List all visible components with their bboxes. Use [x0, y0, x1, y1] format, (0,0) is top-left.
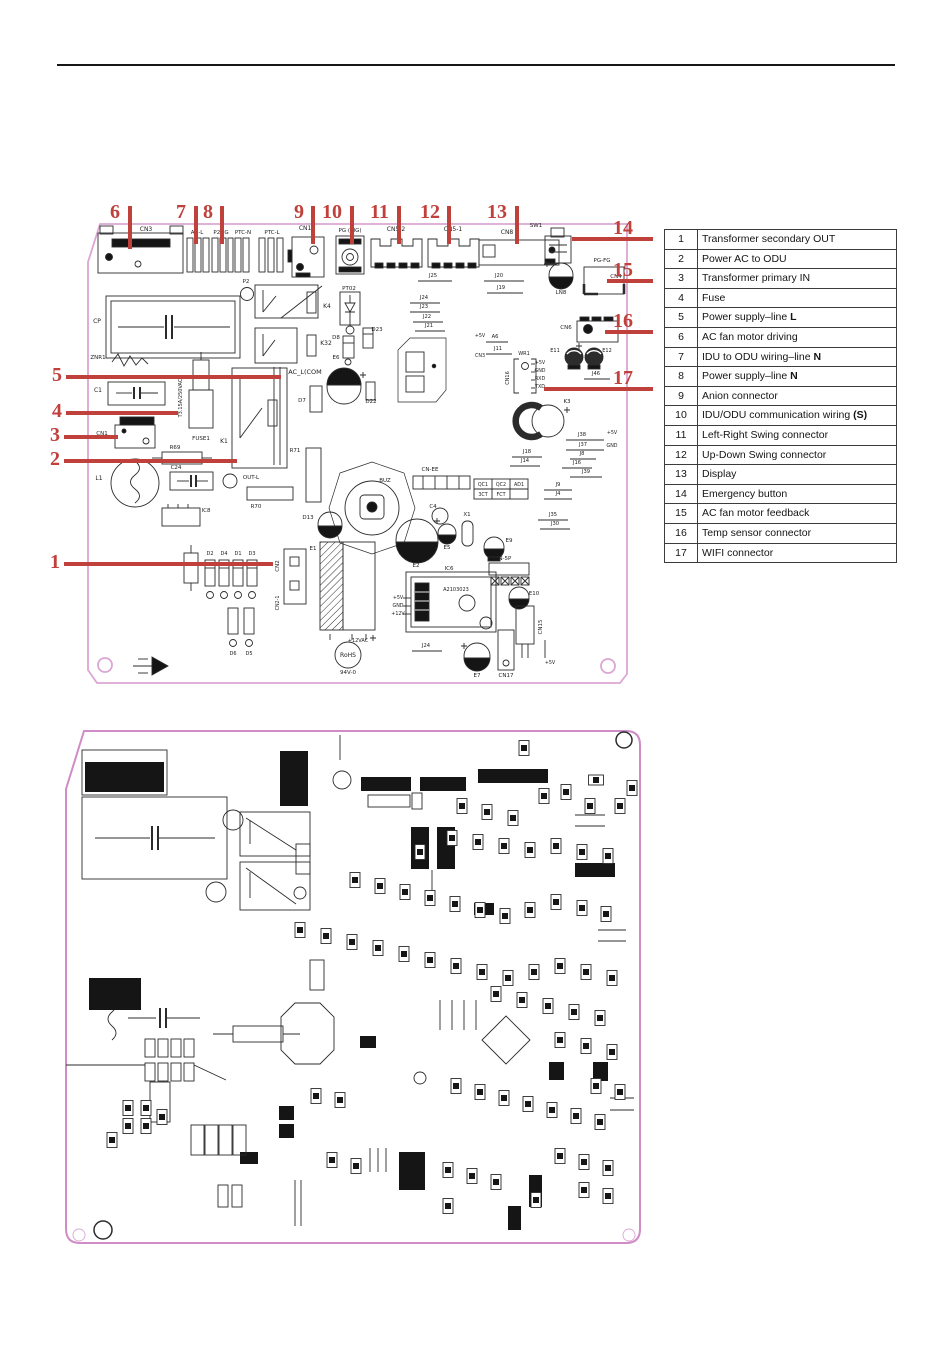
pcb-footprint — [629, 785, 635, 791]
pcb-footprint — [323, 933, 329, 939]
pcb-footprint — [205, 1125, 218, 1155]
pcb-footprint — [375, 945, 381, 951]
legend-label: Power AC to ODU — [698, 249, 897, 269]
pcb-footprint — [557, 1153, 563, 1159]
legend-num: 14 — [665, 484, 698, 504]
silkscreen-label: CN6 — [560, 325, 572, 331]
pcb-footprint — [583, 969, 589, 975]
silkscreen-label: CN11 — [299, 225, 315, 232]
silkscreen-label: BUZ — [379, 478, 391, 484]
pcb-footprint — [143, 1123, 149, 1129]
pcb-footprint — [593, 1083, 599, 1089]
silkscreen-label: PG (SIG) — [339, 228, 362, 234]
legend-row: 7IDU to ODU wiring–line N — [665, 347, 897, 367]
pcb-footprint — [508, 1206, 521, 1230]
pcb-footprint — [232, 1185, 242, 1207]
silkscreen-label: +5V — [475, 333, 486, 339]
silkscreen-label: CN1 — [96, 431, 107, 437]
silkscreen-label: J11 — [493, 346, 502, 352]
silkscreen-label: J18 — [522, 449, 531, 455]
pcb-footprint — [579, 849, 585, 855]
silkscreen-label: WR1 — [518, 351, 530, 357]
pcb-footprint — [414, 1072, 426, 1084]
legend-label: Up-Down Swing connector — [698, 445, 897, 465]
pcb-footprint — [218, 1185, 228, 1207]
legend-num: 11 — [665, 425, 698, 445]
silkscreen-label: IC6 — [445, 566, 454, 572]
legend-row: 6AC fan motor driving — [665, 327, 897, 347]
silkscreen-label: R71 — [290, 448, 301, 454]
pcb-footprint — [240, 862, 310, 910]
silkscreen-label: D4 — [220, 551, 227, 557]
silkscreen-label: ZNR1 — [90, 355, 105, 361]
pcb-footprint — [469, 1173, 475, 1179]
silkscreen-label: K32 — [320, 340, 332, 347]
legend-table-body: 1Transformer secondary OUT2Power AC to O… — [665, 230, 897, 563]
pcb-footprint — [502, 913, 508, 919]
silkscreen-label: SW1 — [530, 223, 542, 229]
silkscreen-label: CP — [93, 318, 101, 325]
pcb-footprint — [549, 1107, 555, 1113]
legend-num: 13 — [665, 465, 698, 485]
pcb-footprint — [605, 1165, 611, 1171]
silkscreen-label: +12VAC — [348, 638, 369, 644]
silkscreen-label: J37 — [578, 442, 587, 448]
pcb-footprint — [368, 795, 410, 807]
silkscreen-label: D6 — [229, 651, 236, 657]
legend-num: 6 — [665, 327, 698, 347]
pcb-footprint — [401, 951, 407, 957]
silkscreen-label: C1 — [94, 387, 102, 394]
legend-label: AC fan motor driving — [698, 327, 897, 347]
pcb-footprint — [541, 793, 547, 799]
pcb-footprint — [233, 1125, 246, 1155]
pcb-footprint — [279, 1106, 294, 1120]
pcb-footprint — [109, 1137, 115, 1143]
pcb-footprint — [557, 1037, 563, 1043]
pcb-footprint — [527, 907, 533, 913]
pcb-footprint — [563, 789, 569, 795]
silkscreen-label: C4 — [429, 504, 437, 510]
pcb-footprint — [531, 969, 537, 975]
silkscreen-label: PTC-L — [264, 230, 280, 236]
pcb-footprint — [329, 1157, 335, 1163]
legend-row: 4Fuse — [665, 288, 897, 308]
pcb-footprint — [125, 1105, 131, 1111]
pcb-footprint — [420, 777, 466, 791]
pcb-footprint — [597, 1015, 603, 1021]
pcb-footprint — [459, 803, 465, 809]
pcb-footprint — [402, 889, 408, 895]
silkscreen-label: A2103023 — [443, 587, 469, 593]
manual-page: CN3AC-LP2NGPTC-NPTC-LCN11PG (SIG)CN5-2CN… — [0, 0, 950, 1354]
silkscreen-label: CN17 — [499, 673, 514, 679]
legend-num: 17 — [665, 543, 698, 563]
pcb-footprint — [125, 1123, 131, 1129]
silkscreen-label: J21 — [424, 323, 433, 329]
silkscreen-label: K4 — [323, 303, 331, 310]
silkscreen-label: CN5-1 — [444, 226, 463, 233]
silkscreen-label: P2 — [243, 279, 250, 285]
silkscreen-label: IC8 — [202, 508, 211, 514]
legend-label: AC fan motor feedback — [698, 504, 897, 524]
legend-row: 9Anion connector — [665, 386, 897, 406]
legend-row: 1Transformer secondary OUT — [665, 230, 897, 250]
pcb-figures: CN3AC-LP2NGPTC-NPTC-LCN11PG (SIG)CN5-2CN… — [0, 0, 950, 1354]
legend-label: Power supply–line N — [698, 367, 897, 387]
silkscreen-label: FUSE1 — [192, 436, 210, 442]
pcb-footprint — [605, 853, 611, 859]
silkscreen-label: FCT — [496, 492, 505, 498]
legend-row: 15AC fan motor feedback — [665, 504, 897, 524]
silkscreen-label: +5V — [545, 660, 556, 666]
pcb-footprint — [240, 812, 310, 856]
pcb-footprint — [191, 1125, 204, 1155]
pcb-footprint — [333, 771, 351, 789]
pcb-footprint — [240, 1152, 258, 1164]
pcb-footprint — [605, 1193, 611, 1199]
silkscreen-label: X1 — [463, 512, 470, 518]
legend-row: 16Temp sensor connector — [665, 523, 897, 543]
pcb-footprint — [452, 901, 458, 907]
pcb-footprint — [525, 1101, 531, 1107]
pcb-footprint — [505, 975, 511, 981]
silkscreen-label: J9 — [555, 482, 561, 488]
silkscreen-label: J16 — [572, 460, 581, 466]
legend-row: 12Up-Down Swing connector — [665, 445, 897, 465]
pcb-footprint — [501, 843, 507, 849]
silkscreen-label: J24 — [421, 643, 431, 649]
silkscreen-label: E9 — [506, 538, 513, 544]
silkscreen-label: J22 — [422, 314, 431, 320]
legend-label: IDU to ODU wiring–line N — [698, 347, 897, 367]
pcb-footprint — [527, 847, 533, 853]
silkscreen-label: J20 — [494, 273, 503, 279]
silkscreen-label: E12 — [602, 348, 612, 354]
silkscreen-label: E1 — [310, 546, 317, 552]
legend-row: 13Display — [665, 465, 897, 485]
silkscreen-label: R69 — [170, 445, 181, 451]
silkscreen-label: CN4 — [610, 274, 622, 280]
pcb-footprint — [493, 1179, 499, 1185]
silkscreen-label: CN2 — [275, 560, 281, 571]
legend-num: 3 — [665, 269, 698, 289]
legend-num: 9 — [665, 386, 698, 406]
pcb-footprint — [412, 793, 422, 809]
silkscreen-label: J39 — [581, 469, 590, 475]
pcb-footprint — [477, 1089, 483, 1095]
silkscreen-label: J8 — [579, 451, 585, 457]
pcb-footprint — [279, 1124, 294, 1138]
silkscreen-label: CN3 — [140, 226, 153, 233]
legend-row: 2Power AC to ODU — [665, 249, 897, 269]
silkscreen-label: CN2-1 — [275, 596, 281, 611]
silkscreen-label: PG-FG — [594, 258, 611, 264]
silkscreen-label: E2 — [413, 563, 420, 569]
silkscreen-label: CN8 — [501, 229, 514, 236]
silkscreen-label: AC-L — [191, 230, 204, 236]
pcb-footprint — [453, 963, 459, 969]
pcb-footprint — [377, 883, 383, 889]
pcb-footprint — [294, 887, 306, 899]
pcb-footprint — [89, 978, 141, 1010]
silkscreen-label: +5V — [535, 360, 546, 366]
silkscreen-label: E7 — [474, 673, 481, 679]
legend-label: Transformer primary IN — [698, 269, 897, 289]
silkscreen-label: +5V — [607, 430, 618, 436]
pcb-footprint — [501, 1095, 507, 1101]
silkscreen-label: GND — [393, 603, 404, 609]
pcb-bottom-art — [66, 731, 640, 1243]
legend-label: Anion connector — [698, 386, 897, 406]
pcb-footprint — [575, 863, 615, 877]
pcb-footprint — [417, 849, 423, 855]
pcb-footprint — [427, 957, 433, 963]
silkscreen-label: QC2 — [496, 482, 506, 488]
legend-label: Emergency button — [698, 484, 897, 504]
legend-row: 11Left-Right Swing connector — [665, 425, 897, 445]
pcb-footprint — [453, 1083, 459, 1089]
silkscreen-label: +5V — [393, 595, 404, 601]
silkscreen-label: J4 — [555, 491, 562, 497]
silkscreen-label: A6 — [492, 334, 499, 340]
silkscreen-label: TXD — [534, 384, 545, 390]
silkscreen-label: +12V — [391, 611, 405, 617]
silkscreen-label: R13 — [162, 562, 173, 568]
silkscreen-label: LN8 — [556, 290, 567, 296]
pcb-footprint — [583, 1043, 589, 1049]
pcb-footprint — [484, 809, 490, 815]
silkscreen-label: D8 — [332, 335, 340, 341]
silkscreen-label: AD1 — [514, 482, 524, 488]
pcb-footprint — [571, 1009, 577, 1015]
pcb-footprint — [361, 777, 411, 791]
silkscreen-label: K3 — [563, 399, 571, 405]
pcb-footprint — [206, 882, 226, 902]
pcb-footprint — [617, 1089, 623, 1095]
legend-row: 10IDU/ODU communication wiring (S) — [665, 406, 897, 426]
silkscreen-label: AC_L(COM — [288, 368, 322, 376]
pcb-footprint — [597, 1119, 603, 1125]
legend-row: 3Transformer primary IN — [665, 269, 897, 289]
legend-label: Transformer secondary OUT — [698, 230, 897, 250]
pcb-footprint — [360, 1036, 376, 1048]
pcb-footprint — [587, 803, 593, 809]
pcb-footprint — [445, 1203, 451, 1209]
legend-row: 14Emergency button — [665, 484, 897, 504]
pcb-footprint — [549, 1062, 564, 1080]
pcb-footprint — [553, 843, 559, 849]
silkscreen-label: J25 — [428, 273, 437, 279]
silkscreen-label: T3.15A/250VAC — [178, 378, 184, 418]
silkscreen-label: J38 — [577, 432, 586, 438]
pcb-footprint — [349, 939, 355, 945]
silkscreen-label: CN-5P — [495, 556, 512, 562]
silkscreen-label: RoHS — [340, 652, 356, 659]
silkscreen-label: J24 — [419, 295, 429, 301]
pcb-footprint — [353, 1163, 359, 1169]
pcb-footprint — [593, 777, 599, 783]
silkscreen-label: D23 — [371, 327, 383, 333]
legend-num: 1 — [665, 230, 698, 250]
pcb-footprint — [297, 927, 303, 933]
silkscreen-label: D1 — [234, 551, 241, 557]
legend-num: 15 — [665, 504, 698, 524]
pcb-footprint — [581, 1159, 587, 1165]
pcb-footprint — [143, 1105, 149, 1111]
legend-label: IDU/ODU communication wiring (S) — [698, 406, 897, 426]
pcb-footprint — [533, 1197, 539, 1203]
silkscreen-label: D13 — [302, 515, 314, 521]
legend-label: Fuse — [698, 288, 897, 308]
pcb-footprint — [553, 899, 559, 905]
silkscreen-label: P2NG — [213, 230, 228, 236]
silkscreen-label: 3CT — [478, 492, 487, 498]
silkscreen-label: J30 — [550, 521, 559, 527]
legend-num: 16 — [665, 523, 698, 543]
silkscreen-label: CN-EE — [422, 467, 439, 473]
legend-table: 1Transformer secondary OUT2Power AC to O… — [664, 229, 897, 563]
pcb-footprint — [617, 803, 623, 809]
pcb-footprint — [159, 1114, 165, 1120]
silkscreen-label: D3 — [248, 551, 255, 557]
legend-label: Display — [698, 465, 897, 485]
pcb-footprint — [85, 762, 164, 792]
silkscreen-label: C24 — [171, 465, 182, 471]
pcb-footprint — [581, 1187, 587, 1193]
legend-num: 8 — [665, 367, 698, 387]
silkscreen-label: E6 — [333, 355, 340, 361]
legend-num: 12 — [665, 445, 698, 465]
silkscreen-label: D7 — [298, 398, 306, 404]
pcb-footprint — [579, 905, 585, 911]
pcb-footprint — [603, 911, 609, 917]
pcb-footprint — [337, 1097, 343, 1103]
pcb-footprint — [510, 815, 516, 821]
pcb-footprint — [609, 1049, 615, 1055]
pcb-top-art: CN3AC-LP2NGPTC-NPTC-LCN11PG (SIG)CN5-2CN… — [88, 223, 627, 683]
silkscreen-label: OUT-L — [243, 475, 260, 481]
legend-num: 2 — [665, 249, 698, 269]
pcb-footprint — [493, 991, 499, 997]
silkscreen-label: J35 — [548, 512, 557, 518]
silkscreen-label: K1 — [220, 438, 228, 445]
pcb-footprint — [573, 1113, 579, 1119]
pcb-footprint — [545, 1003, 551, 1009]
pcb-footprint — [479, 969, 485, 975]
silkscreen-label: D22 — [365, 399, 376, 405]
silkscreen-label: D5 — [245, 651, 252, 657]
silkscreen-label: QC1 — [478, 482, 488, 488]
pcb-footprint — [280, 751, 308, 806]
pcb-footprint — [478, 769, 548, 783]
silkscreen-label: E11 — [550, 348, 560, 354]
legend-row: 8Power supply–line N — [665, 367, 897, 387]
pcb-footprint — [352, 877, 358, 883]
silkscreen-label: R70 — [251, 504, 262, 510]
legend-row: 5Power supply–line L — [665, 308, 897, 328]
legend-num: 10 — [665, 406, 698, 426]
legend-num: 5 — [665, 308, 698, 328]
pcb-footprint — [219, 1125, 232, 1155]
pcb-footprint — [557, 963, 563, 969]
legend-label: WIFI connector — [698, 543, 897, 563]
pcb-footprint — [445, 1167, 451, 1173]
silkscreen-label: E10 — [529, 591, 540, 597]
legend-label: Left-Right Swing connector — [698, 425, 897, 445]
silkscreen-label: PTC-N — [235, 230, 251, 236]
silkscreen-label: J46 — [591, 371, 600, 377]
silkscreen-label: J19 — [496, 285, 505, 291]
silkscreen-label: 94V-0 — [340, 670, 356, 676]
silkscreen-label: L1 — [95, 475, 102, 482]
pcb-footprint — [310, 960, 324, 990]
silkscreen-label: J14 — [520, 458, 530, 464]
silkscreen-label: PT02 — [342, 286, 356, 292]
silkscreen-label: CN3 — [475, 353, 485, 359]
silkscreen-label: CN5-2 — [387, 226, 406, 233]
silkscreen-label: GND — [535, 368, 546, 374]
pcb-footprint — [427, 895, 433, 901]
pcb-footprint — [519, 997, 525, 1003]
pcb-footprint — [296, 844, 310, 874]
pcb-footprint — [477, 907, 483, 913]
pcb-footprint — [313, 1093, 319, 1099]
legend-num: 7 — [665, 347, 698, 367]
legend-num: 4 — [665, 288, 698, 308]
legend-row: 17WIFI connector — [665, 543, 897, 563]
legend-label: Power supply–line L — [698, 308, 897, 328]
pcb-footprint — [449, 835, 455, 841]
pcb-footprint — [609, 975, 615, 981]
silkscreen-label: RXD — [535, 376, 546, 382]
legend-label: Temp sensor connector — [698, 523, 897, 543]
pcb-footprint — [521, 745, 527, 751]
silkscreen-label: CN16 — [505, 371, 511, 385]
pcb-footprint — [399, 1152, 425, 1190]
silkscreen-label: E5 — [444, 545, 451, 551]
silkscreen-label: GND — [607, 443, 618, 449]
silkscreen-label: D2 — [206, 551, 213, 557]
pcb-footprint — [475, 839, 481, 845]
silkscreen-label: CN15 — [538, 619, 544, 634]
silkscreen-label: J23 — [419, 304, 428, 310]
